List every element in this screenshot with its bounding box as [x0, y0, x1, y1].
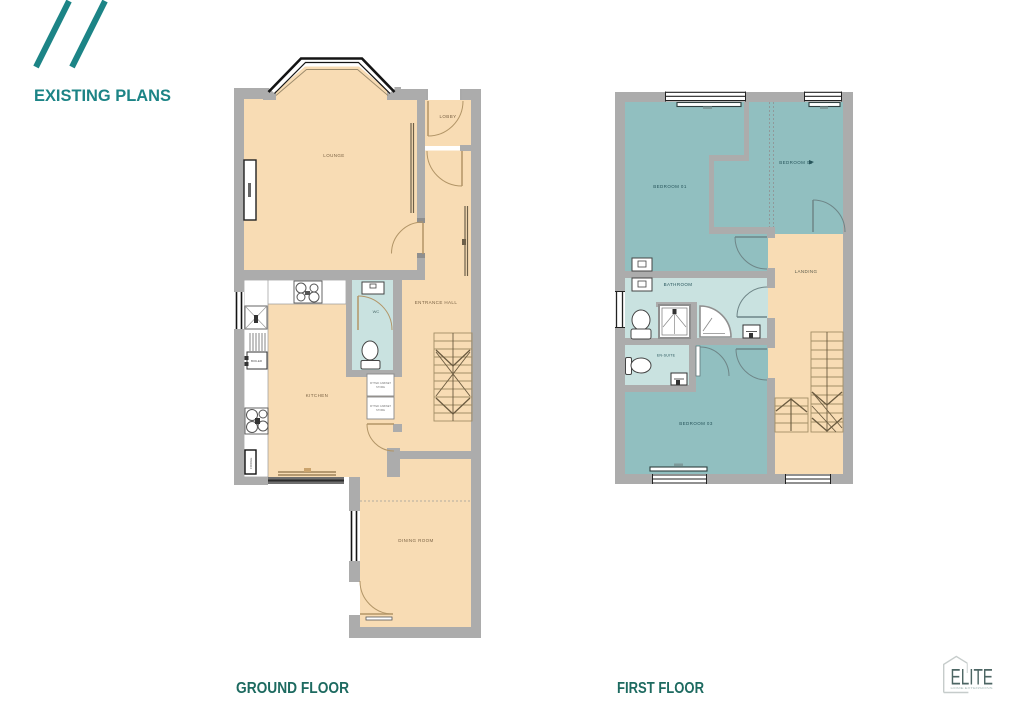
- svg-text:LANDING: LANDING: [795, 269, 818, 274]
- svg-text:BEDROOM 02: BEDROOM 02: [779, 160, 813, 165]
- svg-text:FITTED CABINET: FITTED CABINET: [370, 381, 391, 385]
- svg-text:LOBBY: LOBBY: [439, 114, 456, 119]
- svg-text:BATHROOM: BATHROOM: [664, 282, 693, 287]
- svg-text:EXISTING PLANS: EXISTING PLANS: [34, 87, 171, 105]
- svg-text:STORE: STORE: [376, 408, 385, 412]
- svg-text:HOME EXTENSIONS: HOME EXTENSIONS: [951, 686, 993, 690]
- svg-text:STORE: STORE: [376, 385, 385, 389]
- svg-text:GROUND FLOOR: GROUND FLOOR: [236, 680, 349, 697]
- svg-text:DINING ROOM: DINING ROOM: [398, 538, 433, 543]
- svg-text:FIRST FLOOR: FIRST FLOOR: [617, 680, 704, 697]
- svg-text:LOUNGE: LOUNGE: [323, 153, 344, 158]
- svg-text:BEDROOM 01: BEDROOM 01: [653, 184, 687, 189]
- svg-text:FRIDGE: FRIDGE: [249, 458, 253, 469]
- svg-text:KITCHEN: KITCHEN: [306, 393, 329, 398]
- svg-text:EN-SUITE: EN-SUITE: [657, 354, 676, 358]
- svg-text:BEDROOM 03: BEDROOM 03: [679, 421, 713, 426]
- svg-text:WC: WC: [373, 309, 380, 314]
- svg-text:FITTED CABINET: FITTED CABINET: [370, 404, 391, 408]
- svg-text:BOILER: BOILER: [251, 359, 263, 363]
- svg-text:ENTRANCE HALL: ENTRANCE HALL: [415, 300, 458, 305]
